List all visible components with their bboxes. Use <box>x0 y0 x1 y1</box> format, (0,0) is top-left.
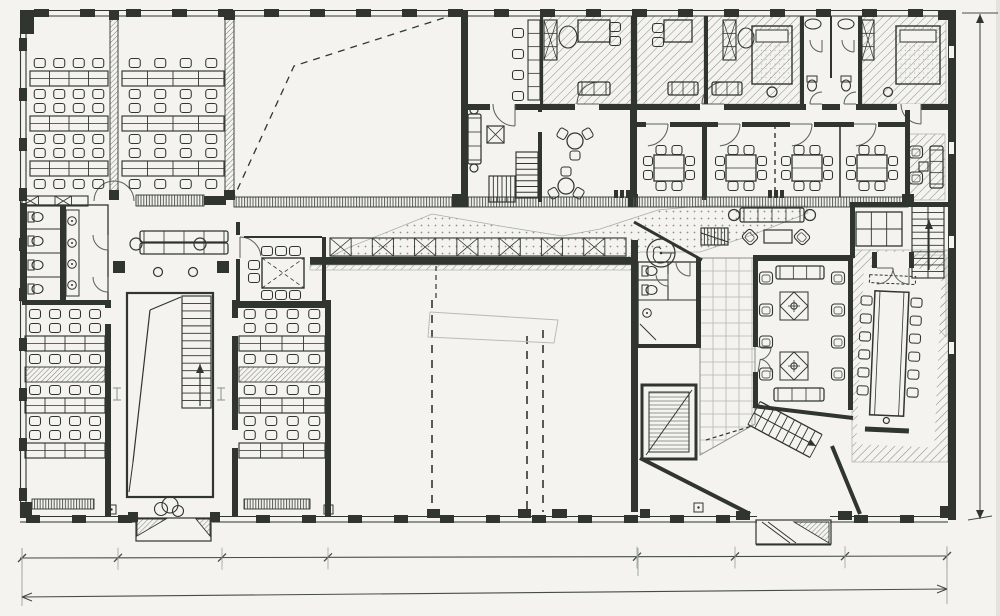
ne-corner-pier <box>938 10 956 20</box>
bin-mark-1 <box>614 190 618 198</box>
lobby-column-2 <box>217 261 229 273</box>
lounge-west-wall-1 <box>753 261 758 347</box>
office-door-gap-3 <box>700 104 724 110</box>
hall-pier-2 <box>518 509 531 518</box>
grille-band-hall <box>234 197 632 207</box>
office-divider-5 <box>858 16 862 104</box>
small-room-stair-b <box>489 176 515 202</box>
grille-band-west <box>136 195 204 206</box>
office-divider-4 <box>800 16 804 104</box>
boardroom-door-jamb-1 <box>872 252 877 268</box>
sw-corner-pier <box>20 502 32 518</box>
partition-classroom-1-2 <box>109 10 119 200</box>
bin-mark-3 <box>626 190 630 198</box>
radiator-bench-2 <box>244 499 310 509</box>
corridor-west-wall <box>630 108 637 202</box>
bin-mark-2 <box>620 190 624 198</box>
office-door-gap-4 <box>806 104 822 110</box>
se-corner-pier <box>940 506 956 518</box>
floor-plan-page <box>0 0 1000 616</box>
small-room-door-gap <box>538 112 542 132</box>
office-door-gap-2 <box>575 104 599 110</box>
corridor-south-wall-hatch <box>310 265 632 270</box>
wc-partition <box>830 16 832 78</box>
bed-1 <box>752 26 792 84</box>
gym-east-wall <box>631 240 638 512</box>
boardroom-door-gap <box>877 252 909 268</box>
bed-2 <box>896 26 940 84</box>
west-wall-restroom-segment <box>20 203 27 301</box>
east-wall-window-2 <box>949 142 954 154</box>
classroom-sw1-north-wall <box>22 300 111 305</box>
hall-pier-1 <box>427 509 440 518</box>
office-divider-3 <box>704 16 708 104</box>
east-wall-window-4 <box>949 342 954 354</box>
classroom-sw2-door-gap-2 <box>232 430 238 448</box>
hall-pier-4 <box>640 509 650 518</box>
meeting-divider-1 <box>702 122 707 200</box>
south-band-segment <box>204 196 226 205</box>
lounge-west-wall-2 <box>753 372 758 408</box>
wc-se-south-wall <box>638 344 700 348</box>
east-wall-window-1 <box>949 46 954 58</box>
conference-west-wall <box>236 222 240 306</box>
porch-sw-pier-2 <box>210 512 220 522</box>
partition-classroom-hall <box>224 10 235 200</box>
east-wall-window-3 <box>949 236 954 248</box>
classroom-sw1-east-wall <box>105 300 111 516</box>
restroom-center-wall <box>60 205 66 301</box>
corridor-south-wall <box>310 257 632 265</box>
classroom-sw2-north-wall <box>232 301 329 305</box>
plan-root <box>0 0 1000 616</box>
classroom-sw1-door-gap <box>105 308 111 324</box>
paper-edge-shadow <box>996 0 1000 616</box>
hall-pier-3 <box>552 509 567 518</box>
conference-east-wall <box>322 237 326 307</box>
nw-corner-pier <box>20 10 34 34</box>
wc-se-east-wall <box>696 258 701 348</box>
classroom-sw2-door-gap-1 <box>232 318 238 336</box>
lounge-north-wall <box>753 255 853 261</box>
stair-room-west-wall <box>850 202 855 258</box>
bin-mark-6 <box>780 190 784 198</box>
band-cap-1 <box>452 194 468 207</box>
radiator-bench-1 <box>32 499 94 509</box>
conference-door-gap <box>236 235 240 259</box>
porch-sw-pier-1 <box>128 512 138 522</box>
corner-office-floor-hatch <box>907 134 945 200</box>
bin-mark-4 <box>768 190 772 198</box>
office-divider-2 <box>631 16 637 104</box>
lobby-column-1 <box>113 261 125 273</box>
floor-plan-svg <box>0 0 1000 616</box>
east-wall <box>948 10 956 520</box>
office-door-gap-5 <box>840 104 856 110</box>
classroom-sw2-east-wall <box>325 300 331 516</box>
lounge-east-wall <box>848 258 853 410</box>
south-pier-6 <box>838 511 852 520</box>
bin-mark-5 <box>774 190 778 198</box>
